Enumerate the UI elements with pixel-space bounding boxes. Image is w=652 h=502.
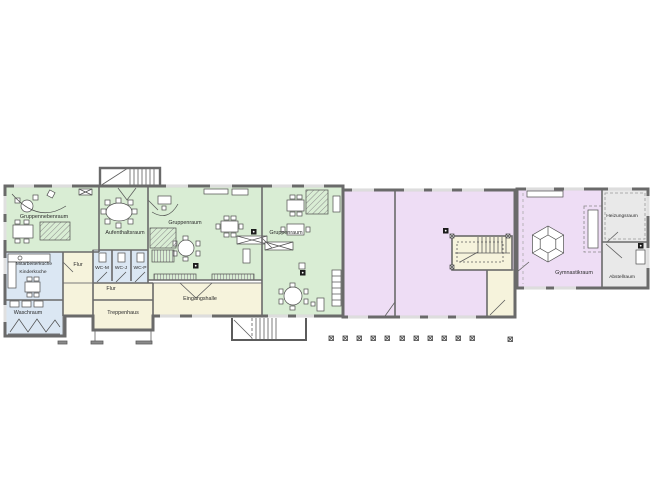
toilet-icon — [137, 253, 144, 262]
room-label: Eingangshalle — [183, 296, 217, 302]
post-marker — [508, 337, 513, 342]
room-corridor — [487, 270, 515, 316]
exterior-stair-bottom — [232, 318, 306, 340]
post-marker — [414, 336, 419, 341]
post-marker — [400, 336, 405, 341]
room-label: Gruppenraum — [168, 220, 202, 226]
room-label: Abstellraum — [609, 274, 635, 280]
post-marker — [428, 336, 433, 341]
site-post-markers — [329, 336, 513, 342]
oval-table-icon — [101, 198, 137, 228]
floor-plan-canvas: Gruppennebenraum Aufenthaltsraum Gruppen… — [0, 0, 652, 502]
room-label: Waschraum — [14, 310, 43, 316]
room-label: Gymnastikraum — [555, 270, 593, 276]
rug-hatched — [150, 228, 176, 248]
vent-symbol — [79, 189, 92, 195]
post-marker — [385, 336, 390, 341]
room-hall-1 — [343, 190, 395, 317]
room-label: Kinderküche — [19, 269, 46, 275]
post-marker — [357, 336, 362, 341]
rug-hatched — [40, 222, 70, 240]
room-label: Gruppennebenraum — [20, 214, 69, 220]
toilet-icon — [118, 253, 125, 262]
room-label: Gruppenraum — [269, 230, 303, 236]
room-label: Flur — [73, 262, 82, 268]
room-abstellraum — [602, 242, 648, 288]
porch-columns — [58, 330, 152, 344]
post-marker — [470, 336, 475, 341]
post-marker — [329, 336, 334, 341]
room-label: WC-M — [95, 265, 109, 271]
shelf-crossed — [265, 242, 293, 250]
sink-icon — [10, 301, 19, 307]
room-label: Aufenthaltsraum — [105, 230, 145, 236]
toilet-icon — [99, 253, 106, 262]
post-marker — [343, 336, 348, 341]
post-marker — [456, 336, 461, 341]
room-label: Heizungsraum — [606, 213, 638, 219]
exterior-stair-top — [100, 168, 160, 186]
sink-icon — [22, 301, 31, 307]
room-label: Treppenhaus — [107, 310, 139, 316]
room-label: WC-J — [115, 265, 128, 271]
post-marker — [371, 336, 376, 341]
post-marker — [442, 336, 447, 341]
room-label: Flur — [106, 286, 115, 292]
room-label: Mitarbeiterküche — [16, 261, 52, 267]
room-label: WC-P — [133, 265, 146, 271]
rug-hatched — [306, 190, 328, 214]
floor-plan-svg: Gruppennebenraum Aufenthaltsraum Gruppen… — [0, 0, 652, 502]
shelf-grid — [332, 270, 341, 306]
sink-icon — [34, 301, 43, 307]
